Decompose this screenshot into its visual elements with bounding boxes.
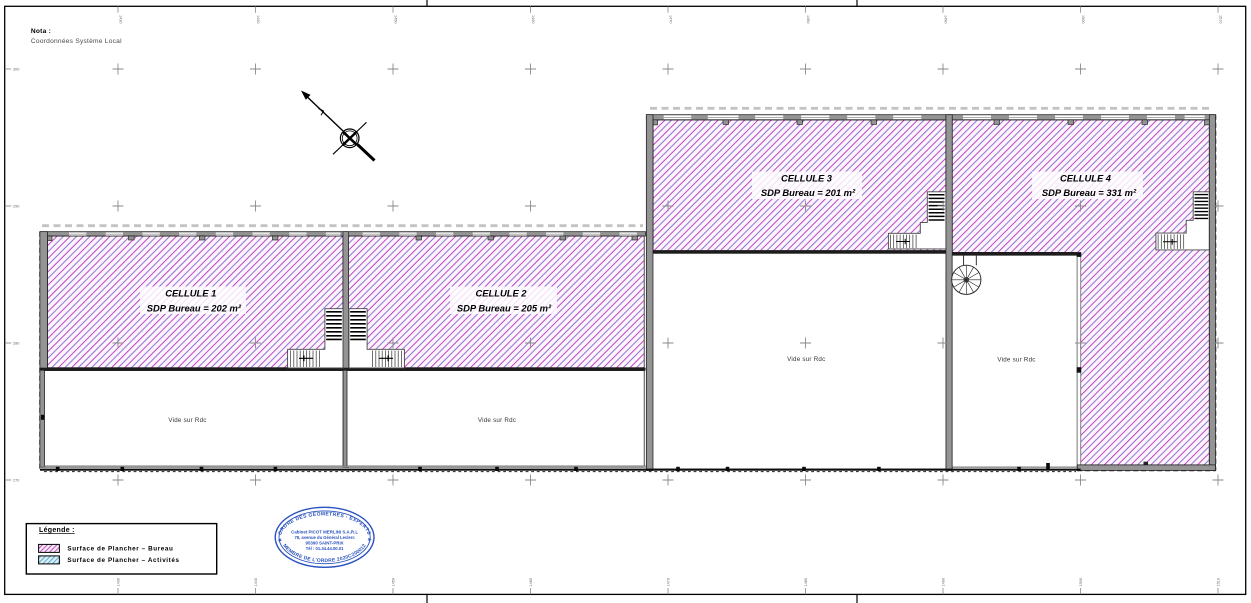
svg-text:1480: 1480 [806, 15, 810, 23]
svg-text:SDP Bureau = 331 m²: SDP Bureau = 331 m² [1042, 187, 1137, 198]
svg-text:Vide sur Rdc: Vide sur Rdc [168, 417, 206, 424]
svg-text:1450: 1450 [394, 15, 398, 23]
svg-text:1430: 1430 [117, 578, 121, 586]
svg-text:Surface de Plancher – Activité: Surface de Plancher – Activités [67, 557, 179, 564]
svg-text:CELLULE 4: CELLULE 4 [1060, 173, 1112, 184]
svg-text:1470: 1470 [669, 15, 673, 23]
svg-text:Surface de Plancher – Bureau: Surface de Plancher – Bureau [67, 546, 173, 553]
svg-text:CELLULE 2: CELLULE 2 [475, 288, 527, 299]
svg-text:1500: 1500 [1079, 578, 1083, 586]
svg-text:1490: 1490 [942, 578, 946, 586]
svg-text:SDP Bureau = 201 m²: SDP Bureau = 201 m² [761, 187, 856, 198]
svg-text:Nota :: Nota : [31, 28, 51, 35]
svg-text:1450: 1450 [392, 578, 396, 586]
svg-text:1440: 1440 [254, 578, 258, 586]
svg-text:Légende :: Légende : [39, 527, 75, 534]
svg-text:280: 280 [13, 342, 19, 346]
svg-text:1490: 1490 [944, 15, 948, 23]
svg-text:SDP Bureau = 205 m²: SDP Bureau = 205 m² [457, 303, 552, 314]
svg-text:300: 300 [13, 68, 19, 72]
svg-text:1460: 1460 [531, 15, 535, 23]
svg-text:Vide sur Rdc: Vide sur Rdc [787, 356, 825, 363]
svg-text:Vide sur Rdc: Vide sur Rdc [997, 357, 1035, 364]
svg-text:CELLULE 1: CELLULE 1 [165, 288, 216, 299]
svg-text:SDP Bureau = 202 m²: SDP Bureau = 202 m² [147, 303, 242, 314]
svg-text:Tél : 01.34.44.00.01: Tél : 01.34.44.00.01 [306, 546, 344, 551]
svg-text:Cabinet PICOT MERLINI S.A.R.L: Cabinet PICOT MERLINI S.A.R.L [291, 530, 358, 535]
svg-text:270: 270 [13, 479, 19, 483]
svg-text:1470: 1470 [667, 578, 671, 586]
svg-text:95390 SAINT-PRIX: 95390 SAINT-PRIX [306, 541, 344, 546]
svg-text:1440: 1440 [256, 15, 260, 23]
svg-text:1500: 1500 [1081, 15, 1085, 23]
svg-text:1460: 1460 [529, 578, 533, 586]
svg-text:1480: 1480 [804, 578, 808, 586]
svg-text:Vide sur Rdc: Vide sur Rdc [478, 417, 516, 424]
svg-text:1430: 1430 [119, 15, 123, 23]
svg-text:290: 290 [13, 205, 19, 209]
svg-text:1510: 1510 [1219, 15, 1223, 23]
svg-text:Coordonnées Système Local: Coordonnées Système Local [31, 38, 122, 45]
svg-text:1510: 1510 [1217, 578, 1221, 586]
svg-text:78, avenue du Général Leclerc: 78, avenue du Général Leclerc [294, 535, 355, 540]
svg-text:CELLULE 3: CELLULE 3 [781, 173, 833, 184]
